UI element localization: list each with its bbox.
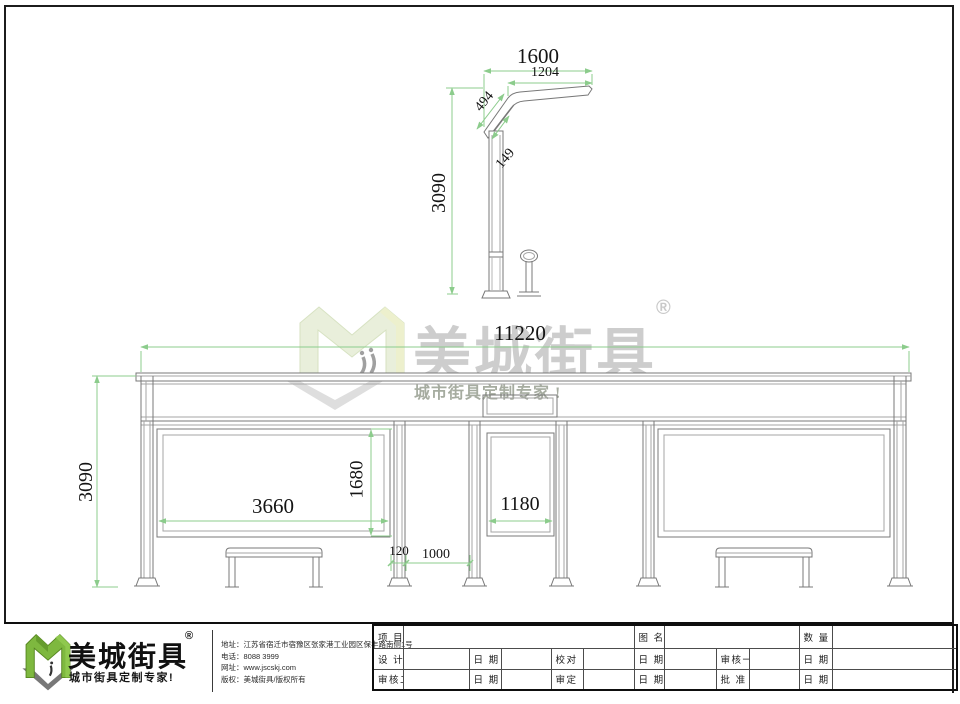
contact-copyright: 版权：美城街具/版权所有 [221, 674, 371, 686]
tb-value-drawing-name [664, 625, 799, 648]
tb-value-date [501, 669, 551, 690]
footer-divider-line [212, 630, 213, 692]
tb-value-reviewer1 [749, 648, 799, 669]
title-block-table: 项 目 图 名 数 量 设 计 日 期 校对 日 期 审核一 [372, 624, 958, 691]
sheet-border [4, 5, 954, 693]
tb-value-ratify [749, 669, 799, 690]
title-block: 项 目 图 名 数 量 设 计 日 期 校对 日 期 审核一 [372, 624, 958, 691]
tb-label-design: 设 计 [373, 648, 403, 669]
tb-label-date: 日 期 [634, 648, 664, 669]
tb-value-approve [583, 669, 634, 690]
tb-value-date [501, 648, 551, 669]
tb-label-drawing-name: 图 名 [634, 625, 664, 648]
tb-label-proofread: 校对 [551, 648, 583, 669]
footer-slogan-text: 城市街具定制专家! [69, 669, 174, 685]
tb-label-quantity: 数 量 [799, 625, 832, 648]
tb-label-reviewer2: 审核二 [373, 669, 403, 690]
tb-label-date: 日 期 [469, 648, 501, 669]
tb-label-date: 日 期 [799, 648, 832, 669]
tb-label-ratify: 批 准 [716, 669, 749, 690]
footer-registered-mark: ® [185, 630, 193, 642]
tb-label-date: 日 期 [469, 669, 501, 690]
tb-label-approve: 审定 [551, 669, 583, 690]
tb-value-design [403, 648, 469, 669]
footer: 美城街具 ® 城市街具定制专家! 地址：江苏省宿迁市宿豫区张家港工业园区保丰路南… [4, 622, 952, 693]
contact-website: 网址：www.jscskj.com [221, 662, 371, 674]
tb-value-date [664, 669, 716, 690]
tb-label-reviewer1: 审核一 [716, 648, 749, 669]
contact-block: 地址：江苏省宿迁市宿豫区张家港工业园区保丰路南侧1号 电话：8088 3999 … [221, 639, 371, 685]
tb-value-date [664, 648, 716, 669]
tb-label-project: 项 目 [373, 625, 403, 648]
drawing-sheet: 美城街具 ® 城市街具定制专家 ! [0, 0, 960, 704]
tb-value-project [403, 625, 634, 648]
tb-value-quantity [832, 625, 957, 648]
tb-label-date: 日 期 [799, 669, 832, 690]
tb-value-proofread [583, 648, 634, 669]
contact-address: 地址：江苏省宿迁市宿豫区张家港工业园区保丰路南侧1号 [221, 639, 371, 651]
contact-phone: 电话：8088 3999 [221, 651, 371, 663]
tb-label-date: 日 期 [634, 669, 664, 690]
tb-value-date [832, 669, 957, 690]
tb-value-reviewer2 [403, 669, 469, 690]
tb-value-date [832, 648, 957, 669]
